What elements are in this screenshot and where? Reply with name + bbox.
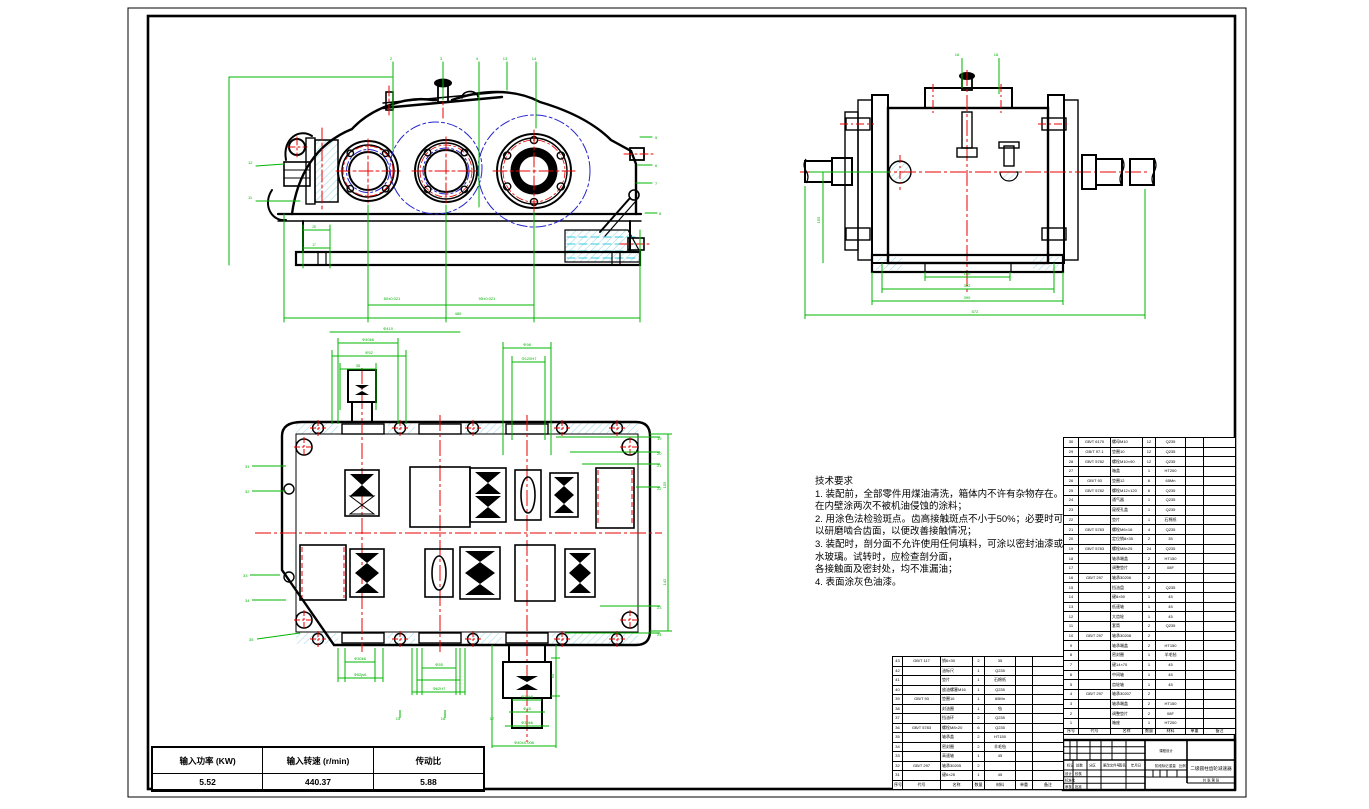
bom-cell: 29 xyxy=(1064,447,1079,457)
bom-cell xyxy=(1079,709,1111,719)
bom-cell: 27 xyxy=(1064,467,1079,477)
bom-cell xyxy=(1186,612,1204,622)
bom-cell: 垫圈16 xyxy=(941,695,973,705)
bom-cell xyxy=(1079,670,1111,680)
bom-cell: 6 xyxy=(1143,476,1156,486)
bom-cell: 6 xyxy=(1064,670,1079,680)
bom-cell xyxy=(1156,573,1186,583)
bom-cell: HT150 xyxy=(1156,554,1186,564)
bom-cell: 窥视孔盖 xyxy=(1111,505,1143,515)
bom-cell: 6 xyxy=(973,723,985,733)
bom-cell: 12 xyxy=(1143,457,1156,467)
dim-label: Φ410 xyxy=(383,326,394,331)
bom-cell xyxy=(1016,742,1033,752)
bom-cell: 45 xyxy=(985,752,1016,762)
role-label: 设计 xyxy=(1065,771,1072,776)
bom-cell xyxy=(1204,622,1236,632)
bom-cell: 30 xyxy=(1064,438,1079,448)
tech-line: 在内壁涂两次不被机油侵蚀的涂料； xyxy=(815,501,1077,514)
bom-cell: 石棉纸 xyxy=(985,676,1016,686)
bom-cell xyxy=(1186,622,1204,632)
bom-cell: 45 xyxy=(1156,612,1186,622)
dim-label: 80±0.021 xyxy=(384,296,401,301)
bom-cell: 12 xyxy=(1143,447,1156,457)
bom-cell xyxy=(1186,554,1204,564)
flange-bolt xyxy=(1042,228,1066,240)
bom-header-cell: 代号 xyxy=(1079,728,1111,735)
bom-cell: 5 xyxy=(1064,680,1079,690)
bom-cell xyxy=(1079,505,1111,515)
bom-cell: 15 xyxy=(1064,583,1079,593)
bom-header-cell: 数量 xyxy=(973,780,985,790)
bom-cell: 3 xyxy=(1064,699,1079,709)
tech-line: 4. 表面涂灰色油漆。 xyxy=(815,577,1077,590)
dim-label: 155 xyxy=(662,481,667,488)
bom-cell: 25 xyxy=(1064,486,1079,496)
dim-label: 390 xyxy=(964,295,971,300)
tech-title: 技术要求 xyxy=(815,476,1077,489)
bom-cell: GB/T 93 xyxy=(903,695,941,705)
parameter-table: 输入功率 (KW) 输入转速 (r/min) 传动比 5.52 440.37 5… xyxy=(151,746,485,792)
balloon-label: 32 xyxy=(245,489,250,494)
bom-cell xyxy=(1079,496,1111,506)
rev-label: 分区 xyxy=(1089,763,1096,768)
bom-cell: GB/T 5782 xyxy=(1079,457,1111,467)
bom-cell: 12 xyxy=(1143,438,1156,448)
bom-cell: GB/T 5782 xyxy=(1079,486,1111,496)
bom-cell xyxy=(1186,476,1204,486)
bom-cell: 齿轮轴 xyxy=(1111,680,1143,690)
bom-cell: GB/T 297 xyxy=(903,761,941,771)
stage-label: 阶段标记 xyxy=(1155,763,1169,768)
bom-cell xyxy=(1204,718,1236,728)
bom-cell: 17 xyxy=(1064,563,1079,573)
technical-requirements: 技术要求 1. 装配前，全部零件用煤油清洗，箱体内不许有杂物存在。在内壁涂两次不… xyxy=(815,476,1077,589)
balloon-label: 20 xyxy=(657,451,662,456)
dim-label: 35 xyxy=(356,363,361,368)
bom-header-cell: 材料 xyxy=(1156,728,1186,735)
role-label: 批准 xyxy=(1075,784,1082,789)
bom-header-cell: 备注 xyxy=(1204,728,1236,735)
balloon-label: 35 xyxy=(249,637,254,642)
bom-cell: GB/T 5783 xyxy=(1079,544,1111,554)
balloon-label: 24 xyxy=(657,632,662,637)
dim-label: 17 xyxy=(312,243,316,247)
bom-cell: GB/T 117 xyxy=(903,657,941,667)
bom-cell: 23 xyxy=(1064,505,1079,515)
bom-cell xyxy=(1186,573,1204,583)
bom-cell: 35 xyxy=(893,733,903,743)
balloon-label: 34 xyxy=(245,598,250,603)
bom-cell: 轴承端盖 xyxy=(1111,554,1143,564)
bom-cell: 1 xyxy=(1143,496,1156,506)
balloon-label: 18 xyxy=(994,52,999,57)
bom-cell: 轴承端盖 xyxy=(1111,641,1143,651)
bom-cell: 密封圈 xyxy=(1111,651,1143,661)
bom-header-cell: 数量 xyxy=(1143,728,1156,735)
bearing-cap-3 xyxy=(493,130,575,212)
bom-cell: 35 xyxy=(985,657,1016,667)
bom-cell xyxy=(903,676,941,686)
bom-cell xyxy=(1016,714,1033,724)
bom-cell: 20 xyxy=(1064,534,1079,544)
bom-cell: 封油圈 xyxy=(941,704,973,714)
bom-cell: 26 xyxy=(1064,476,1079,486)
bom-cell xyxy=(1033,666,1064,676)
bom-cell: 1 xyxy=(1143,602,1156,612)
bom-cell xyxy=(1079,612,1111,622)
bom-cell: Q235 xyxy=(1156,544,1186,554)
bom-cell: 45 xyxy=(1156,670,1186,680)
bom-cell: 1 xyxy=(1143,467,1156,477)
balloon-label: 33 xyxy=(243,573,248,578)
bom-cell: 油标尺 xyxy=(941,666,973,676)
scale-label: 比例 xyxy=(1179,763,1186,768)
dim-label: 60 xyxy=(550,673,555,678)
bom-cell: 1 xyxy=(973,666,985,676)
bom-cell xyxy=(1204,689,1236,699)
bom-cell xyxy=(1033,771,1064,781)
balloon-label: 31 xyxy=(245,464,250,469)
bom-cell xyxy=(1016,723,1033,733)
balloon-label: 17 xyxy=(490,716,495,721)
bom-cell: GB/T 5783 xyxy=(1079,525,1111,535)
bom-cell: 41 xyxy=(893,676,903,686)
bom-cell xyxy=(1186,583,1204,593)
bom-cell xyxy=(1204,583,1236,593)
bom-cell: GB/T 6170 xyxy=(1079,438,1111,448)
bom-cell: HT200 xyxy=(1156,467,1186,477)
bom-cell xyxy=(1204,525,1236,535)
bom-cell: 垫片 xyxy=(1111,515,1143,525)
bom-cell: 2 xyxy=(1064,709,1079,719)
bom-cell: 13 xyxy=(1064,602,1079,612)
bom-cell xyxy=(1033,695,1064,705)
bom-cell xyxy=(1186,651,1204,661)
bom-cell xyxy=(1204,593,1236,603)
balloon-label: 8 xyxy=(659,211,662,216)
bom-cell: 9 xyxy=(1064,641,1079,651)
bom-cell xyxy=(1016,657,1033,667)
bom-table-main: 30GB/T 6170螺母M1012Q23529GB/T 97.1垫圈1012Q… xyxy=(1063,437,1236,735)
bom-cell: 套筒 xyxy=(1111,622,1143,632)
bom-cell: 轴承盖 xyxy=(941,733,973,743)
bom-cell xyxy=(1204,641,1236,651)
bom-cell xyxy=(1079,593,1111,603)
bom-cell: 2 xyxy=(1143,534,1156,544)
bom-cell: 石棉纸 xyxy=(1156,515,1186,525)
bom-cell xyxy=(1204,496,1236,506)
sheet-label: 共 张 第 张 xyxy=(1203,778,1220,783)
bom-cell: HT150 xyxy=(1156,699,1186,709)
balloon-label: 6 xyxy=(655,163,658,168)
bom-cell: 24 xyxy=(1143,544,1156,554)
balloon-label: 22 xyxy=(657,486,662,491)
bom-cell: HT150 xyxy=(985,733,1016,743)
bom-cell xyxy=(1079,641,1111,651)
rev-label: 标记 xyxy=(1067,763,1074,768)
bom-cell xyxy=(985,761,1016,771)
bom-cell xyxy=(1186,631,1204,641)
rev-label: 处数 xyxy=(1076,763,1083,768)
bom-cell xyxy=(1079,651,1111,661)
bom-cell: 2 xyxy=(1143,573,1156,583)
bom-header-cell: 备注 xyxy=(1033,780,1064,790)
bom-cell xyxy=(1204,651,1236,661)
param-header-power: 输入功率 (KW) xyxy=(152,747,263,774)
bom-cell xyxy=(1186,660,1204,670)
bom-cell: 24 xyxy=(1064,496,1079,506)
bom-cell xyxy=(1204,612,1236,622)
bom-cell xyxy=(1186,438,1204,448)
dim-label: Φ40±0.008 xyxy=(514,740,535,745)
bom-cell xyxy=(1186,670,1204,680)
bom-cell xyxy=(1186,641,1204,651)
bom-cell: 37 xyxy=(893,714,903,724)
bom-cell xyxy=(1156,689,1186,699)
tech-line: 水玻璃。试转时，应检查剖分面， xyxy=(815,552,1077,565)
bom-cell: Q235 xyxy=(1156,496,1186,506)
bom-cell: 1 xyxy=(1143,612,1156,622)
bom-cell: 中间轴 xyxy=(1111,670,1143,680)
balloon-label: 2 xyxy=(390,56,393,61)
bom-cell xyxy=(1204,680,1236,690)
bom-cell: 65Mn xyxy=(1156,476,1186,486)
bom-cell xyxy=(1186,486,1204,496)
bom-cell: 65Mn xyxy=(985,695,1016,705)
bom-cell: Q235 xyxy=(1156,457,1186,467)
bom-cell: 1 xyxy=(1064,718,1079,728)
bom-cell: 2 xyxy=(1143,563,1156,573)
bom-cell: 38 xyxy=(893,704,903,714)
bom-cell: 低速轴 xyxy=(1111,602,1143,612)
bom-cell: Q235 xyxy=(1156,438,1186,448)
bom-cell: 轴承30208 xyxy=(1111,631,1143,641)
bom-cell xyxy=(1033,742,1064,752)
bom-cell: 键8×50 xyxy=(1111,593,1143,603)
bom-cell xyxy=(1186,602,1204,612)
dim-label: Φ55 xyxy=(435,662,443,667)
balloon-label: 23 xyxy=(657,605,662,610)
bom-cell: 2 xyxy=(1143,583,1156,593)
bom-cell: 36 xyxy=(893,723,903,733)
bom-cell xyxy=(1204,505,1236,515)
bom-cell xyxy=(1079,534,1111,544)
bom-cell: 14 xyxy=(1064,593,1079,603)
bom-cell: 1 xyxy=(1143,505,1156,515)
bom-cell xyxy=(1204,699,1236,709)
bom-cell: 2 xyxy=(1143,709,1156,719)
bom-cell: 毡 xyxy=(985,704,1016,714)
housing-box xyxy=(888,108,1048,263)
bom-cell xyxy=(1204,447,1236,457)
bom-cell: 22 xyxy=(1064,515,1079,525)
bom-cell xyxy=(1186,515,1204,525)
bom-cell: 1 xyxy=(1143,660,1156,670)
bom-header-cell: 材料 xyxy=(985,780,1016,790)
bom-cell: Q235 xyxy=(985,666,1016,676)
bom-cell: 2 xyxy=(973,742,985,752)
bom-cell xyxy=(1079,680,1111,690)
balloon-label: 4 xyxy=(476,56,479,61)
bom-cell: GB/T 297 xyxy=(1079,689,1111,699)
param-value-speed: 440.37 xyxy=(263,774,374,791)
balloon-label: 13 xyxy=(503,56,508,61)
param-value-ratio: 5.88 xyxy=(373,774,484,791)
dim-label: Φ120H7 xyxy=(522,356,538,361)
bom-cell: 42 xyxy=(893,666,903,676)
bom-cell: Q235 xyxy=(985,685,1016,695)
dim-label: 28 xyxy=(312,225,316,229)
dim-label: Φ30k6 xyxy=(521,720,534,725)
bom-cell xyxy=(1186,718,1204,728)
bom-cell xyxy=(1186,505,1204,515)
bom-cell: 08F xyxy=(1156,563,1186,573)
bom-cell xyxy=(1204,544,1236,554)
bom-cell xyxy=(1016,733,1033,743)
balloon-label: 3 xyxy=(440,56,443,61)
bom-cell xyxy=(1204,573,1236,583)
bom-cell: 1 xyxy=(973,685,985,695)
bom-cell xyxy=(1186,496,1204,506)
dim-label: Φ52 xyxy=(365,350,373,355)
bom-cell xyxy=(1204,515,1236,525)
bom-cell: 2 xyxy=(973,714,985,724)
bom-cell: 螺栓M6×16 xyxy=(1111,525,1143,535)
bom-cell: 通气器 xyxy=(1111,496,1143,506)
bom-cell: 键6×25 xyxy=(941,771,973,781)
bom-cell: 螺母M10 xyxy=(1111,438,1143,448)
bom-cell xyxy=(903,771,941,781)
bom-cell: Q235 xyxy=(1156,486,1186,496)
balloon-label: 15 xyxy=(396,716,401,721)
bom-cell xyxy=(1204,486,1236,496)
bom-cell: 10 xyxy=(1064,631,1079,641)
bom-cell xyxy=(1204,438,1236,448)
dim-label: Φ62H7 xyxy=(433,686,447,691)
bom-cell xyxy=(1186,467,1204,477)
bom-cell: HT150 xyxy=(1156,641,1186,651)
balloon-label: 19 xyxy=(657,436,662,441)
tech-lines: 1. 装配前，全部零件用煤油清洗，箱体内不许有杂物存在。在内壁涂两次不被机油侵蚀… xyxy=(815,489,1077,590)
bom-cell: 大齿轮 xyxy=(1111,612,1143,622)
bom-cell: Q235 xyxy=(1156,447,1186,457)
bom-cell: Q235 xyxy=(1156,583,1186,593)
title-block: 标记 处数 分区 更改文件号 签名 年月日 设计 校核 标准化 审核 批准 课程… xyxy=(1063,740,1235,790)
bom-cell: 螺栓M12×120 xyxy=(1111,486,1143,496)
bom-cell xyxy=(1186,680,1204,690)
rev-label: 签名 xyxy=(1119,763,1126,768)
bom-cell: 2 xyxy=(973,733,985,743)
bom-cell xyxy=(903,714,941,724)
side-view: 16 18 140 302 390 572 155 xyxy=(800,52,1156,319)
bom-cell: 1 xyxy=(1143,651,1156,661)
bom-cell xyxy=(1033,733,1064,743)
bom-cell: 螺栓M8×20 xyxy=(941,723,973,733)
bom-cell: 28 xyxy=(1064,457,1079,467)
balloon-label: 11 xyxy=(248,195,253,200)
bom-cell xyxy=(1204,670,1236,680)
casting-hook xyxy=(268,190,286,220)
bom-cell: 箱盖 xyxy=(1111,467,1143,477)
dim-label: 95±0.021 xyxy=(479,296,496,301)
bom-cell: 12 xyxy=(1064,612,1079,622)
dim-label: 572 xyxy=(972,309,979,314)
balloon-label: 5 xyxy=(655,135,658,140)
bom-cell xyxy=(1016,752,1033,762)
bom-cell xyxy=(1033,657,1064,667)
bom-cell: 35 xyxy=(1156,534,1186,544)
bom-table-continuation: 43GB/T 117销6×3023542油标尺1Q23541垫片1石棉纸40放油… xyxy=(892,656,1064,790)
param-header-ratio: 传动比 xyxy=(373,747,484,774)
bom-cell: Q235 xyxy=(985,723,1016,733)
bom-cell xyxy=(1204,631,1236,641)
bom-cell: 2 xyxy=(1143,641,1156,651)
bom-cell: 轴承30206 xyxy=(1111,573,1143,583)
dim-label: Φ40k6 xyxy=(362,337,375,342)
bom-cell: 调整垫片 xyxy=(1111,563,1143,573)
bom-cell: 31 xyxy=(893,771,903,781)
bom-cell: 45 xyxy=(1156,680,1186,690)
dim-label: 302 xyxy=(964,283,971,288)
bom-cell: 2 xyxy=(1143,699,1156,709)
bom-cell: GB/T 5783 xyxy=(903,723,941,733)
bom-cell xyxy=(1079,583,1111,593)
bom-cell xyxy=(1033,723,1064,733)
bom-cell xyxy=(1016,704,1033,714)
bom-cell: 1 xyxy=(1143,593,1156,603)
bom-cell xyxy=(1204,563,1236,573)
bom-cell xyxy=(1204,709,1236,719)
bom-cell: 2 xyxy=(973,657,985,667)
bom-cell: GB/T 297 xyxy=(1079,631,1111,641)
bom-cell xyxy=(1186,525,1204,535)
bom-cell: 34 xyxy=(893,742,903,752)
bom-cell: 1 xyxy=(1143,718,1156,728)
top-view-dimensions xyxy=(250,338,672,748)
bom-cell: 1 xyxy=(973,695,985,705)
bom-cell xyxy=(1204,660,1236,670)
bom-cell xyxy=(1186,447,1204,457)
bom-cell: GB/T 297 xyxy=(1079,573,1111,583)
bom-cell: 39 xyxy=(893,695,903,705)
dim-label: Φ38k6 xyxy=(521,694,534,699)
bom-cell: 16 xyxy=(1064,573,1079,583)
bom-cell: 2 xyxy=(1143,622,1156,632)
bom-cell: 垫圈10 xyxy=(1111,447,1143,457)
bom-cell: 调整垫片 xyxy=(1111,709,1143,719)
bom-cell: 键14×70 xyxy=(1111,660,1143,670)
bom-cell: GB/T 93 xyxy=(1079,476,1111,486)
bom-cell xyxy=(1186,544,1204,554)
bom-cell xyxy=(903,733,941,743)
bom-cell xyxy=(903,742,941,752)
bom-cell: 1 xyxy=(1143,670,1156,680)
flange-section-hatch xyxy=(315,140,338,202)
dim-label: Φ98 xyxy=(523,342,531,347)
bom-cell: 19 xyxy=(1064,544,1079,554)
bom-cell: 4 xyxy=(1143,525,1156,535)
bom-cell: 7 xyxy=(1064,660,1079,670)
bom-cell: 挡油环 xyxy=(941,714,973,724)
bom-cell: 45 xyxy=(1156,593,1186,603)
bom-cell: 4 xyxy=(1064,689,1079,699)
bom-cell xyxy=(1204,467,1236,477)
bom-cell: 45 xyxy=(1156,602,1186,612)
bom-cell xyxy=(1186,593,1204,603)
bom-cell: 32 xyxy=(893,761,903,771)
param-value-power: 5.52 xyxy=(152,774,263,791)
